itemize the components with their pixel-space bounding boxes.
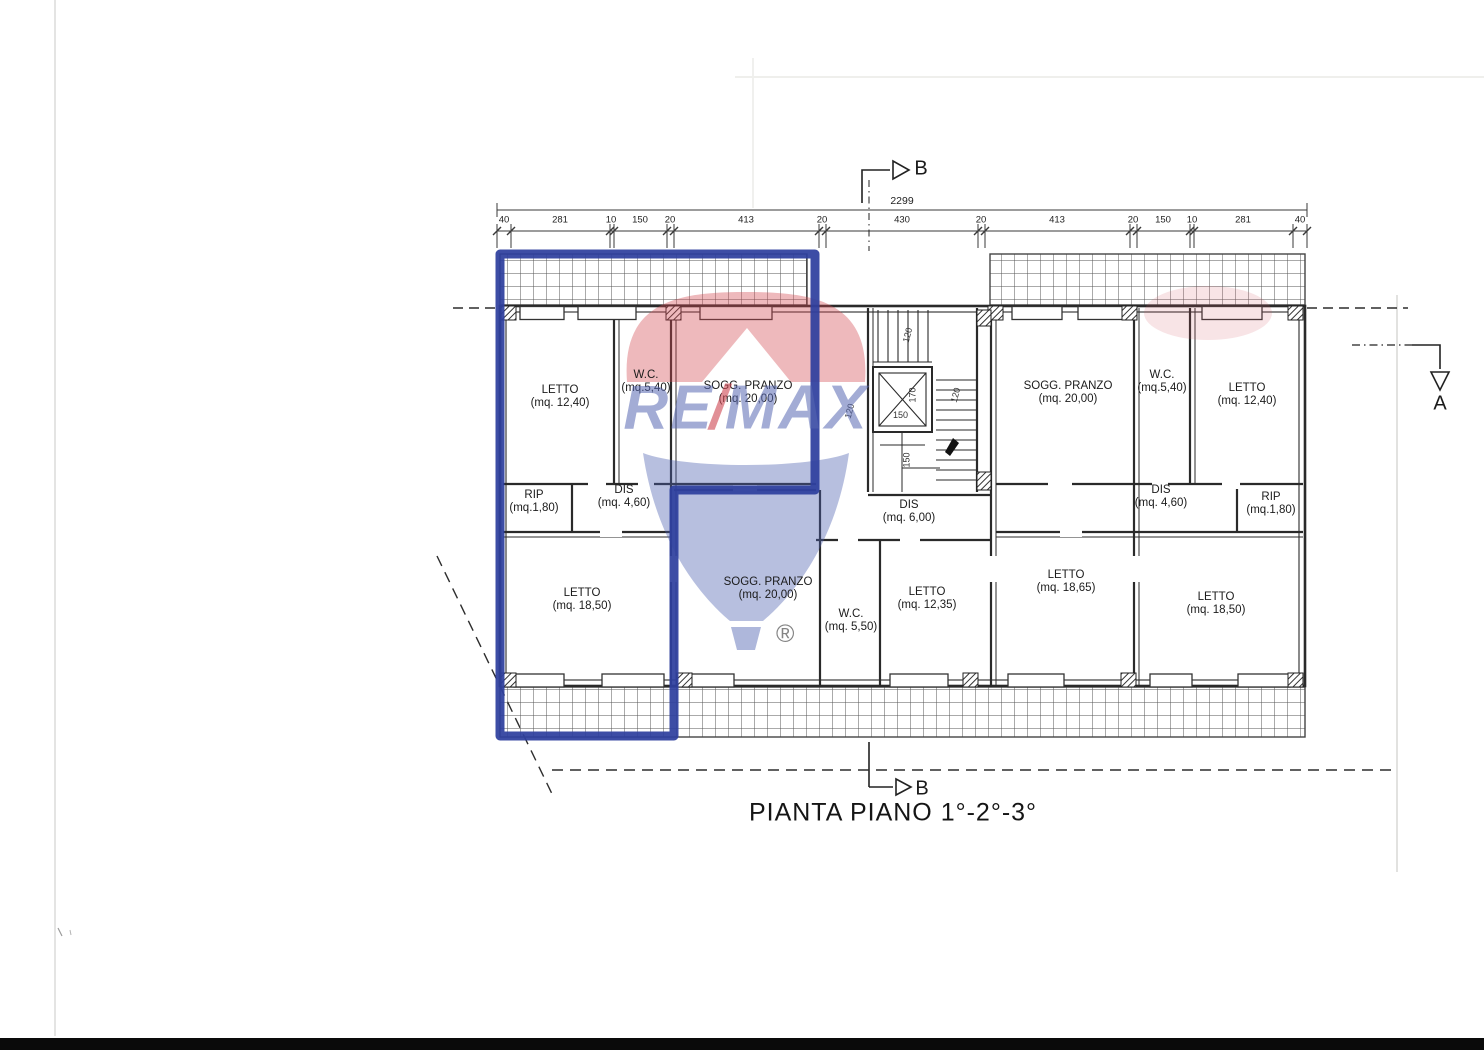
- dim-segment: 40: [499, 215, 510, 226]
- room-label-letto-b: LETTO(mq. 12,35): [898, 586, 957, 612]
- room-name: LETTO: [542, 384, 579, 397]
- dim-segment: 20: [665, 215, 676, 226]
- room-label-sogg-b: SOGG. PRANZO(mq. 20,00): [724, 576, 813, 602]
- room-area: (mq. 5,50): [825, 621, 877, 634]
- room-name: LETTO: [909, 586, 946, 599]
- room-name: LETTO: [1048, 569, 1085, 582]
- room-name: LETTO: [1229, 382, 1266, 395]
- section-marker-b-top: B: [914, 158, 927, 181]
- dim-segment: 20: [976, 215, 987, 226]
- room-label-dis-l: DIS(mq. 4,60): [598, 484, 650, 510]
- room-name: LETTO: [564, 587, 601, 600]
- room-area: (mq. 18,50): [1187, 604, 1246, 617]
- room-name: RIP: [1261, 491, 1280, 504]
- plan-title: PIANTA PIANO 1°-2°-3°: [749, 799, 1037, 828]
- registered-trademark-symbol: ®: [776, 620, 794, 649]
- dim-segment: 150: [1155, 215, 1171, 226]
- room-name: DIS: [1151, 484, 1170, 497]
- dim-segment: 413: [1049, 215, 1065, 226]
- room-area: (mq.1,80): [1246, 504, 1295, 517]
- section-marker-b-bottom: B: [915, 778, 928, 801]
- remax-watermark-text: RE/MAX: [623, 373, 868, 444]
- dim-segment: 150: [632, 215, 648, 226]
- dim-segment: 413: [738, 215, 754, 226]
- dim-segment: 281: [552, 215, 568, 226]
- room-area: (mq. 18,50): [553, 600, 612, 613]
- stair-dim: 170: [908, 387, 918, 402]
- room-name: SOGG. PRANZO: [724, 576, 813, 589]
- dim-segment: 10: [1187, 215, 1198, 226]
- room-name: W.C.: [839, 608, 864, 621]
- room-area: (mq. 12,35): [898, 599, 957, 612]
- room-name: LETTO: [1198, 591, 1235, 604]
- dim-segment: 430: [894, 215, 910, 226]
- room-label-dis-r: DIS(mq. 4,60): [1135, 484, 1187, 510]
- room-label-letto-br2: LETTO(mq. 18,50): [1187, 591, 1246, 617]
- watermark-max: MAX: [725, 373, 869, 444]
- room-label-wc-b: W.C.(mq. 5,50): [825, 608, 877, 634]
- room-label-rip-l: RIP(mq.1,80): [509, 489, 558, 515]
- room-name: DIS: [614, 484, 633, 497]
- scanned-floorplan-page: 2299 40 281 10 150 20 413 20 430 20 413 …: [0, 0, 1484, 1050]
- room-area: (mq. 4,60): [598, 497, 650, 510]
- room-label-letto-bl: LETTO(mq. 18,50): [553, 587, 612, 613]
- room-area: (mq. 20,00): [739, 589, 798, 602]
- room-label-sogg-tr: SOGG. PRANZO(mq. 20,00): [1024, 380, 1113, 406]
- dim-segment: 10: [606, 215, 617, 226]
- dim-segment: 20: [1128, 215, 1139, 226]
- room-label-dis-c: DIS(mq. 6,00): [883, 499, 935, 525]
- room-label-letto-tr: LETTO(mq. 12,40): [1218, 382, 1277, 408]
- dim-total: 2299: [890, 195, 913, 207]
- room-label-wc-tr: W.C.(mq.5,40): [1137, 369, 1186, 395]
- text-overlay: 2299 40 281 10 150 20 413 20 430 20 413 …: [0, 0, 1484, 1050]
- room-area: (mq. 18,65): [1037, 582, 1096, 595]
- room-area: (mq. 12,40): [1218, 395, 1277, 408]
- room-name: W.C.: [1150, 369, 1175, 382]
- room-area: (mq. 6,00): [883, 512, 935, 525]
- room-name: DIS: [899, 499, 918, 512]
- room-area: (mq. 4,60): [1135, 497, 1187, 510]
- section-marker-a: A: [1433, 393, 1446, 416]
- room-label-letto-br1: LETTO(mq. 18,65): [1037, 569, 1096, 595]
- dim-segment: 20: [817, 215, 828, 226]
- room-name: SOGG. PRANZO: [1024, 380, 1113, 393]
- dim-segment: 281: [1235, 215, 1251, 226]
- room-area: (mq.5,40): [1137, 382, 1186, 395]
- room-area: (mq.1,80): [509, 502, 558, 515]
- stair-dim: 120: [949, 386, 963, 403]
- room-name: RIP: [524, 489, 543, 502]
- stair-dim: 120: [901, 326, 915, 343]
- stair-dim: 150: [893, 410, 908, 420]
- watermark-re: RE: [623, 373, 713, 444]
- stair-dim: 150: [902, 452, 912, 467]
- room-area: (mq. 20,00): [1039, 393, 1098, 406]
- room-label-letto-tl: LETTO(mq. 12,40): [531, 384, 590, 410]
- dim-segment: 40: [1295, 215, 1306, 226]
- room-area: (mq. 12,40): [531, 397, 590, 410]
- room-label-rip-r: RIP(mq.1,80): [1246, 491, 1295, 517]
